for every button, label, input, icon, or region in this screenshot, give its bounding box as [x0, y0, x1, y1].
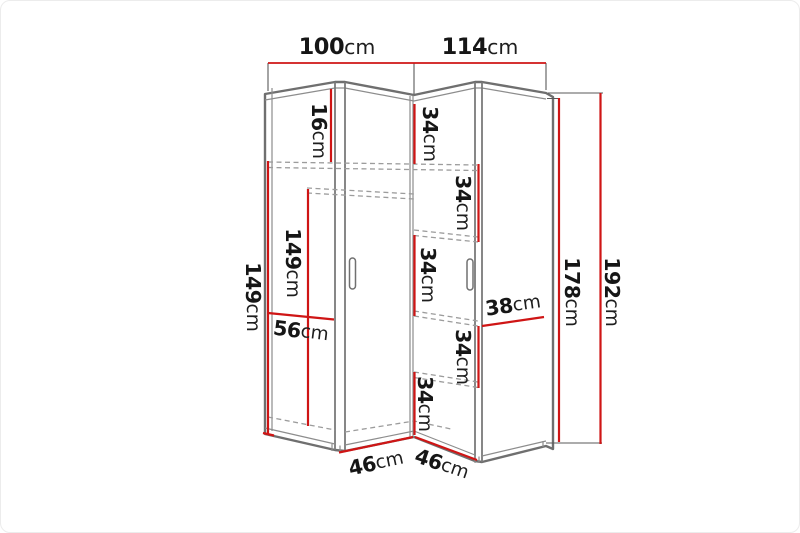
label-shelf-d-34: 34cm [413, 376, 437, 432]
label-height-192: 192cm [600, 257, 624, 327]
label-depth-46-left: 46cm [346, 445, 406, 480]
diagram-canvas: 100cm 114cm 16cm 34cm 34cm 34cm 34cm 34c… [1, 1, 800, 533]
right-door-handle [467, 259, 473, 290]
wardrobe-dimension-diagram: 100cm 114cm 16cm 34cm 34cm 34cm 34cm 34c… [0, 0, 800, 533]
right-extension-top [547, 93, 603, 99]
left-door-handle [350, 258, 356, 289]
label-width-left: 100cm [299, 34, 376, 60]
label-height-149-inner: 149cm [281, 228, 305, 298]
label-shelf-a-34: 34cm [418, 106, 442, 162]
label-height-149-outer: 149cm [241, 262, 265, 332]
label-shelf-c-34: 34cm [416, 247, 440, 303]
label-shelf-b-34: 34cm [451, 175, 475, 231]
label-height-178: 178cm [560, 257, 584, 327]
label-shelf-e-34: 34cm [451, 329, 475, 385]
label-width-right: 114cm [442, 34, 519, 60]
label-top-gap-16: 16cm [307, 103, 331, 159]
